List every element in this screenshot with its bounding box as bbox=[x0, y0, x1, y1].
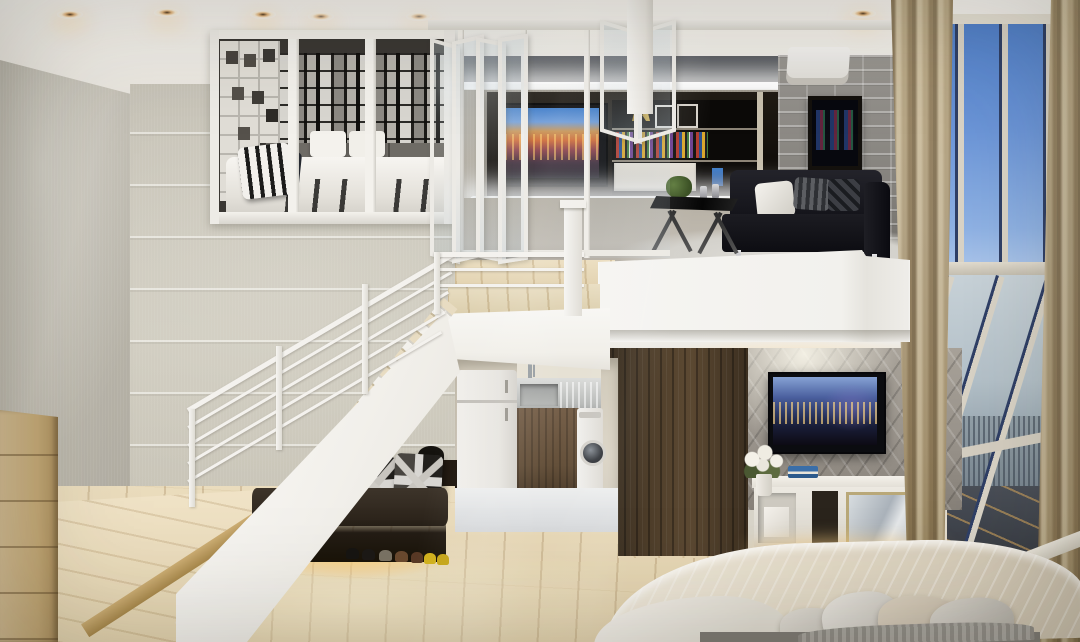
shoes bbox=[437, 554, 449, 565]
dark-pillow bbox=[828, 179, 860, 211]
window-sill bbox=[210, 212, 455, 224]
flower-vase bbox=[756, 474, 772, 496]
railing-post bbox=[189, 409, 195, 507]
shoes bbox=[346, 548, 359, 559]
tv-picture-night-city bbox=[773, 377, 877, 445]
kitchen-tile-floor bbox=[455, 488, 618, 538]
railing-post bbox=[276, 346, 282, 450]
shoes bbox=[379, 550, 392, 561]
photo-frame bbox=[677, 104, 698, 128]
washer-control-panel bbox=[579, 412, 601, 418]
landing-rail bbox=[434, 284, 584, 287]
railing-post bbox=[362, 284, 368, 394]
window-mullion bbox=[288, 30, 299, 224]
decor-box bbox=[764, 507, 789, 537]
window-mullion bbox=[999, 16, 1008, 266]
refrigerator bbox=[457, 370, 517, 495]
window-frame bbox=[210, 30, 219, 224]
striped-pillow bbox=[237, 142, 295, 200]
shoes bbox=[395, 551, 408, 562]
window-mullion bbox=[365, 30, 376, 224]
stacked-books bbox=[788, 466, 818, 478]
sofa-arm bbox=[864, 182, 890, 260]
dark-wood-wall bbox=[600, 348, 748, 568]
drinking-glass bbox=[712, 184, 719, 198]
gray-pillow bbox=[793, 177, 831, 211]
wardrobe-door bbox=[0, 410, 58, 642]
shoes bbox=[362, 549, 375, 560]
spotlight-icon bbox=[250, 10, 276, 19]
air-conditioner bbox=[786, 47, 851, 85]
loft-bedroom-interior bbox=[218, 39, 447, 213]
shoes bbox=[424, 553, 436, 564]
shoes bbox=[411, 552, 423, 563]
table-leg bbox=[713, 212, 738, 254]
framed-artwork bbox=[808, 96, 862, 170]
spotlight-icon bbox=[850, 9, 876, 18]
console-dark-cabinet bbox=[812, 491, 838, 543]
table-leg bbox=[667, 210, 692, 252]
drainboard bbox=[560, 382, 598, 408]
newel-post bbox=[564, 204, 582, 316]
parapet-shadow bbox=[598, 330, 910, 342]
railing-post bbox=[434, 252, 440, 314]
fridge-handle bbox=[505, 380, 508, 393]
window-mullion bbox=[955, 16, 964, 266]
white-pillar bbox=[627, 0, 653, 114]
spotlight-icon bbox=[57, 10, 83, 19]
landing-handrail bbox=[434, 252, 584, 257]
spotlight-icon bbox=[154, 8, 180, 17]
window-frame bbox=[210, 30, 455, 39]
shelf-cubbies bbox=[226, 51, 238, 64]
wood-cabinet bbox=[517, 408, 579, 490]
washer-door bbox=[580, 440, 606, 466]
artwork-picture bbox=[816, 110, 854, 150]
loft-apartment-render bbox=[0, 0, 1080, 642]
sink-basin bbox=[520, 384, 558, 406]
landing-rail bbox=[434, 268, 584, 271]
headboard-cushion bbox=[310, 131, 346, 157]
bedroom-tv bbox=[768, 372, 886, 454]
freezer-seam bbox=[457, 400, 517, 403]
washing-machine bbox=[577, 408, 603, 494]
newel-cap bbox=[560, 200, 586, 208]
spotlight-icon bbox=[308, 12, 334, 21]
loft-bedroom-window bbox=[210, 30, 455, 224]
partition-mullion bbox=[584, 30, 590, 258]
flower-bouquet bbox=[742, 444, 788, 478]
bifold-door-panel bbox=[498, 34, 528, 265]
fridge-handle bbox=[505, 408, 508, 421]
